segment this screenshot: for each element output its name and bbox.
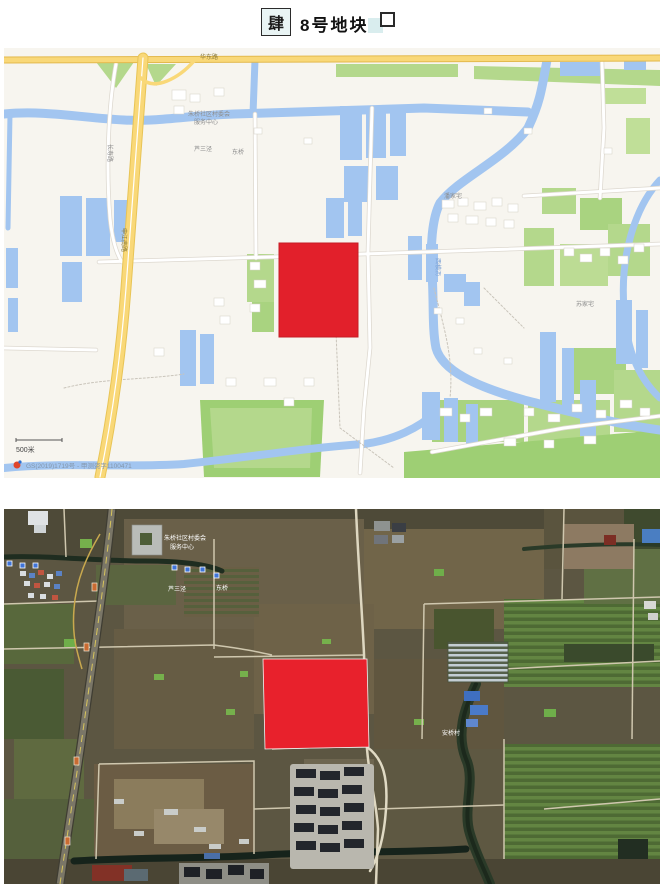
poi-label-line1: 朱桥社区村委会: [188, 110, 230, 118]
document-page: 肆 8号地块: [0, 0, 664, 884]
road-label: 华东路: [200, 53, 218, 61]
satellite-map-image: 朱桥社区村委会 服务中心 芦三泾 东桥 安桥村: [4, 509, 660, 884]
village-label: 东桥: [232, 148, 244, 156]
poi-label-line2: 服务中心: [170, 543, 194, 551]
poi-label-line2: 服务中心: [194, 118, 218, 126]
attribution-text: GS(2019)1719号 - 甲测资字1100471: [26, 461, 132, 470]
expressway-label: 申江南路: [120, 228, 128, 252]
water-name-label: 西横沥: [434, 258, 442, 276]
village-label: 芦三泾: [194, 145, 212, 153]
scale-label: 500米: [16, 445, 35, 454]
poi-label-line1: 朱桥社区村委会: [164, 534, 206, 542]
village-label: 东桥: [216, 584, 228, 592]
village-label: 芦三泾: [168, 585, 186, 593]
road-vertical-label: 长寿路: [106, 144, 114, 162]
checkbox-glyph: [380, 12, 395, 27]
section-marker-box: 肆: [261, 8, 291, 36]
village-label: 安桥村: [442, 729, 460, 737]
plot-8-highlight-satellite: [263, 659, 369, 749]
village-label: 苏家宅: [576, 300, 594, 308]
page-header: 肆 8号地块: [0, 0, 664, 48]
page-title: 8号地块: [300, 11, 368, 36]
street-map-image: 华东路 申江南路 朱桥社区村委会 服务中心 长寿路 芦三泾 东桥 潘家宅 苏家宅…: [4, 48, 660, 478]
village-label: 潘家宅: [444, 192, 462, 200]
plot-8-highlight-street: [279, 243, 358, 337]
